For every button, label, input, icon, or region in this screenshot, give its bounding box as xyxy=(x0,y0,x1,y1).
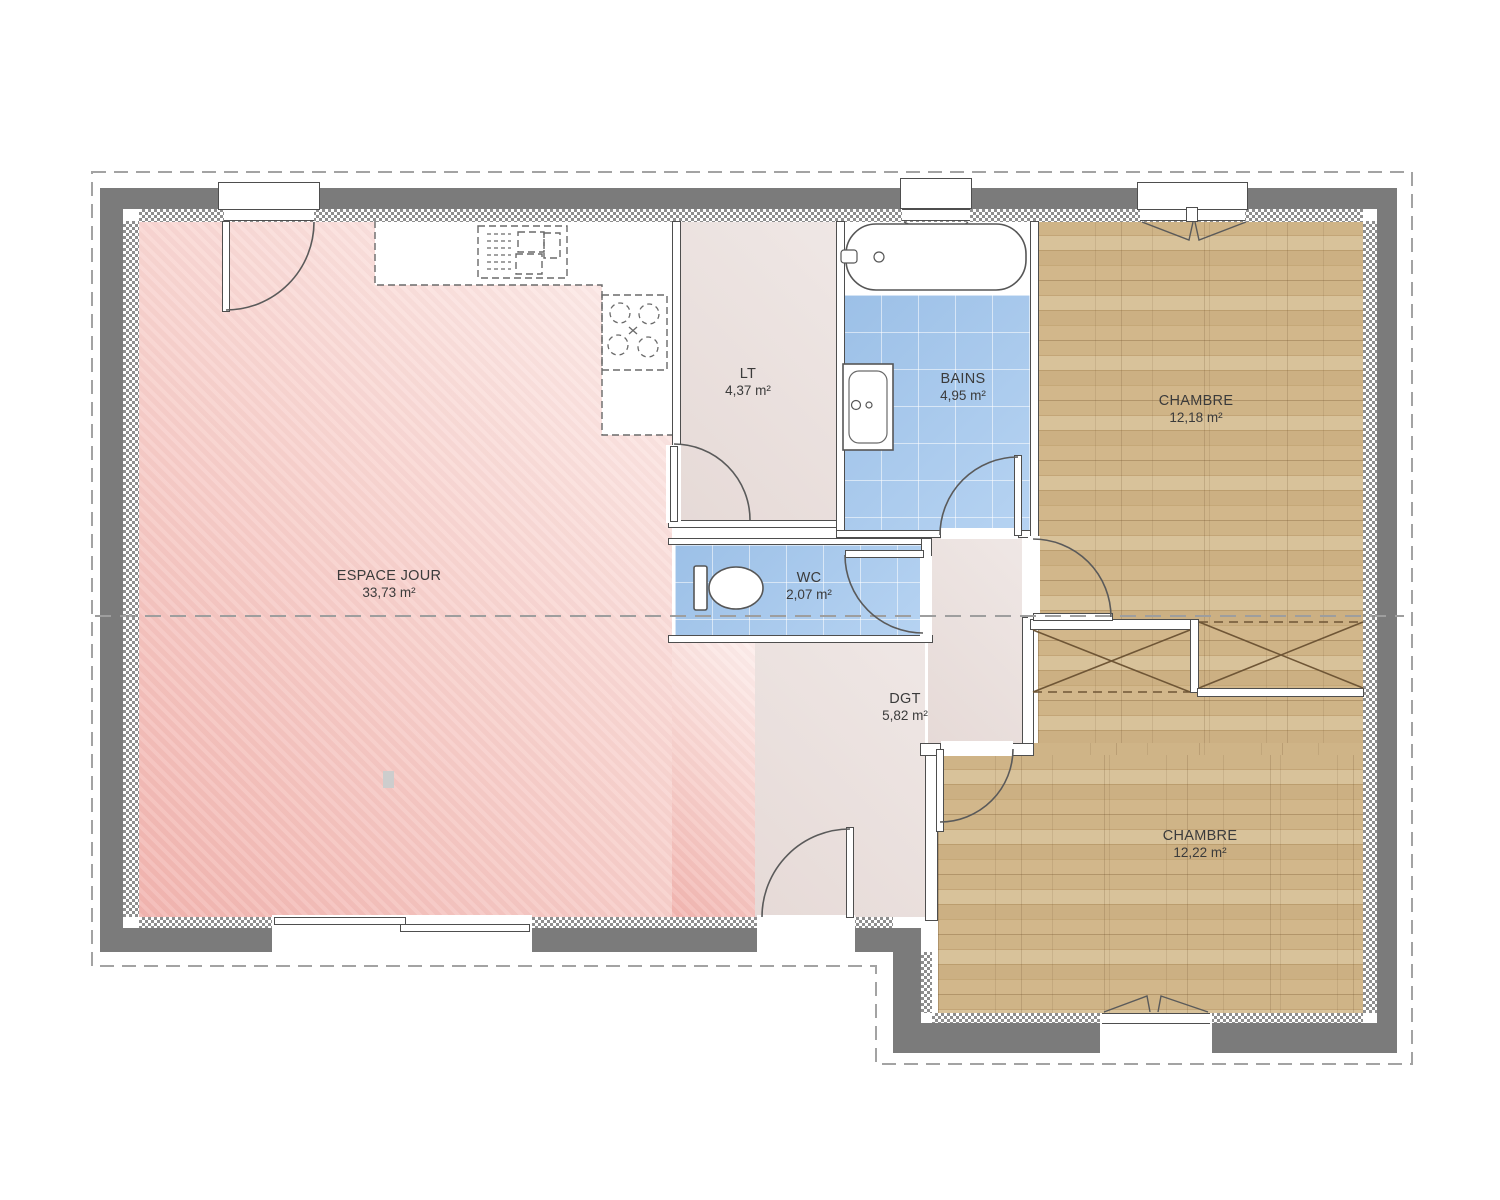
room-name: CHAMBRE xyxy=(1159,393,1234,410)
window-chambre1-box xyxy=(1137,182,1248,210)
door-chambre1-leaf xyxy=(1033,613,1113,621)
room-area: 4,37 m² xyxy=(725,383,771,399)
window-chambre1-mullion xyxy=(1186,207,1198,222)
door-opening-chambre1 xyxy=(1028,536,1040,618)
room-area: 2,07 m² xyxy=(786,587,832,603)
wall-lt-bains xyxy=(836,221,845,538)
room-area: 33,73 m² xyxy=(337,585,442,601)
room-name: LT xyxy=(725,366,771,383)
room-area: 12,22 m² xyxy=(1163,845,1238,861)
room-chambre2-floor xyxy=(938,755,1363,1013)
wall-wc-north xyxy=(668,538,929,545)
wall-lt-south xyxy=(668,520,845,528)
window-bains-sill xyxy=(902,209,970,221)
door-lt-leaf xyxy=(670,446,678,522)
label-dgt: DGT 5,82 m² xyxy=(882,691,928,724)
room-bains-floor xyxy=(844,295,1030,530)
room-dgt-floor xyxy=(755,642,925,917)
wall-wc-south xyxy=(668,635,933,643)
wall-west xyxy=(100,209,123,952)
label-wc: WC 2,07 m² xyxy=(786,570,832,603)
room-dgt-floor-ext xyxy=(928,537,1022,743)
french-door-north-box xyxy=(218,182,320,210)
kitchen-counter-side xyxy=(602,285,672,435)
wall-bains-south-a xyxy=(836,530,941,538)
wall-closet-west xyxy=(1022,617,1034,744)
room-name: CHAMBRE xyxy=(1163,828,1238,845)
label-chambre-2: CHAMBRE 12,22 m² xyxy=(1163,828,1238,861)
room-area: 4,95 m² xyxy=(940,388,986,404)
label-bains: BAINS 4,95 m² xyxy=(940,371,986,404)
kitchen-counter-top xyxy=(375,221,672,285)
door-opening-wc xyxy=(920,556,932,636)
room-area: 12,18 m² xyxy=(1159,410,1234,426)
door-wc-leaf xyxy=(845,550,924,558)
room-name: WC xyxy=(786,570,832,587)
french-door-north-leaf xyxy=(222,221,230,312)
door-bains-leaf xyxy=(1014,455,1022,536)
entry-door-leaf xyxy=(846,827,854,918)
wall-closet-south xyxy=(1197,688,1364,697)
label-espace-jour: ESPACE JOUR 33,73 m² xyxy=(337,568,442,601)
window-chambre2-sill xyxy=(1102,1013,1210,1024)
bay-window-panel-2 xyxy=(400,924,530,932)
wall-chambre1-west xyxy=(1030,221,1039,538)
bathtub-zone xyxy=(844,221,1030,295)
wall-chambre2-north-b xyxy=(1012,743,1034,756)
room-name: DGT xyxy=(882,691,928,708)
label-lt: LT 4,37 m² xyxy=(725,366,771,399)
window-bains-box xyxy=(900,178,972,209)
floor-plan: ESPACE JOUR 33,73 m² LT 4,37 m² BAINS 4,… xyxy=(0,0,1500,1200)
wall-kitchen-lt xyxy=(672,221,681,447)
label-chambre-1: CHAMBRE 12,18 m² xyxy=(1159,393,1234,426)
bay-window-panel-1 xyxy=(274,917,406,925)
insulation-step xyxy=(921,952,932,1013)
room-area: 5,82 m² xyxy=(882,708,928,724)
insulation-west xyxy=(123,221,139,917)
wall-closet-mid xyxy=(1190,619,1199,693)
wall-east xyxy=(1377,209,1397,1053)
french-door-north-sill xyxy=(224,209,314,221)
door-opening-chambre2 xyxy=(941,741,1013,756)
conduit-mark xyxy=(383,771,394,788)
door-opening-bains xyxy=(941,528,1018,539)
door-chambre2-leaf xyxy=(936,749,944,832)
room-espace-jour-floor-ext xyxy=(672,642,756,917)
insulation-east xyxy=(1363,221,1377,1013)
entry-door-opening xyxy=(757,915,855,954)
room-chambre1-floor xyxy=(1038,221,1363,743)
room-name: ESPACE JOUR xyxy=(337,568,442,585)
room-name: BAINS xyxy=(940,371,986,388)
